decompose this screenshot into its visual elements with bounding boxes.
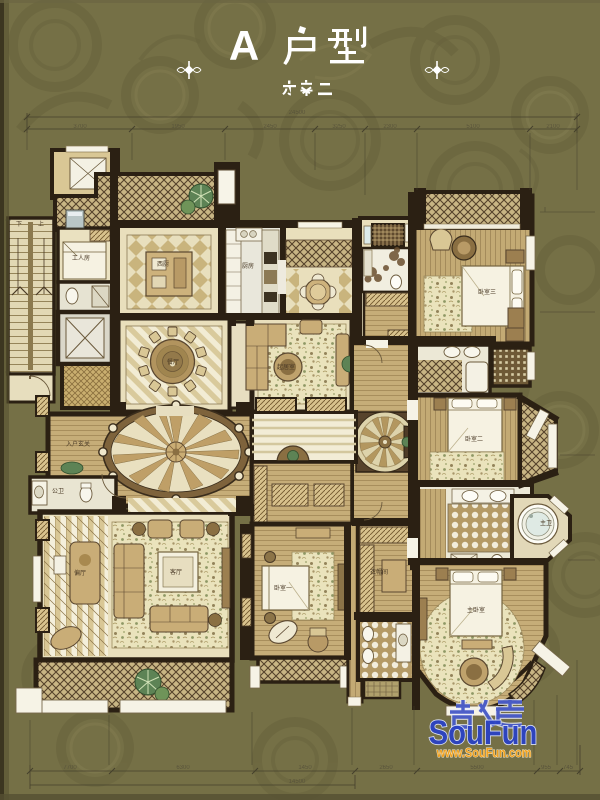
svg-text:卧室一: 卧室一 [274,584,292,592]
svg-text:2300: 2300 [383,124,397,130]
svg-text:955: 955 [541,765,552,771]
svg-text:24500: 24500 [289,110,306,116]
svg-text:A: A [229,22,259,69]
svg-text:厨房: 厨房 [242,262,254,270]
svg-text:卧室二: 卧室二 [465,435,483,443]
svg-text:745: 745 [563,765,574,771]
svg-text:上: 上 [38,220,44,228]
svg-text:客厅: 客厅 [170,568,182,576]
svg-text:主卫: 主卫 [540,519,552,527]
svg-text:5500: 5500 [470,765,484,771]
svg-text:1950: 1950 [171,124,185,130]
svg-text:2450: 2450 [263,124,277,130]
svg-text:卧室三: 卧室三 [478,288,496,296]
svg-text:衣帽间: 衣帽间 [370,568,388,576]
svg-text:2100: 2100 [546,124,560,130]
svg-text:餐厅: 餐厅 [167,358,179,366]
svg-text:6300: 6300 [176,765,190,771]
svg-text:14500: 14500 [289,779,306,785]
svg-text:起居室: 起居室 [277,363,295,371]
svg-text:西厨: 西厨 [157,261,169,268]
svg-text:3700: 3700 [73,124,87,130]
svg-text:下: 下 [16,221,22,228]
svg-text:工人房: 工人房 [72,254,90,262]
svg-text:1450: 1450 [298,765,312,771]
svg-text:偏厅: 偏厅 [74,569,86,577]
svg-text:主卧室: 主卧室 [467,606,485,614]
svg-text:入户玄关: 入户玄关 [66,440,90,448]
svg-text:www.SouFun.com: www.SouFun.com [436,746,532,760]
svg-text:公卫: 公卫 [52,488,64,495]
svg-text:2650: 2650 [379,765,393,771]
svg-text:7700: 7700 [63,765,77,771]
svg-text:5100: 5100 [466,124,480,130]
svg-text:3250: 3250 [332,124,346,130]
